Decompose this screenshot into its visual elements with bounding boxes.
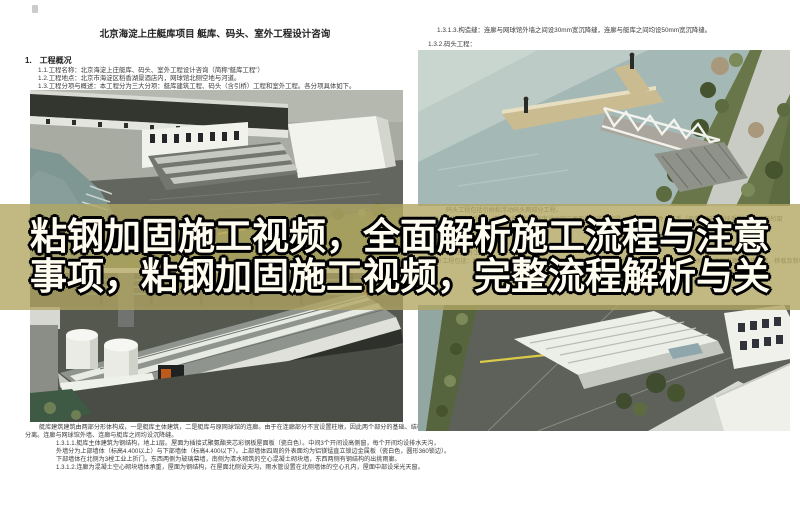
right-top-line-1: 1.3.1.3.构造缝：连廊与网球馆外墙之间设30mm宽沉降缝，连廊与艇库之间均…: [437, 27, 711, 35]
tall-building: [724, 305, 790, 369]
paragraph-line-4: 外墙分为上部墙体（标高4.400以上）与下部墙体（标高4.400以下）。上部墙体…: [56, 448, 450, 456]
paragraph-line-5: 下部墙体在北侧为3樘工业上折门。东西两侧为玻璃幕墙，南侧为清水砌筑的空心混凝土砌…: [56, 456, 401, 464]
paragraph-line-2: 分离。连廊与网球馆外墙、连廊与艇库之间均设沉降缝。: [25, 432, 177, 440]
paragraph-line-3: 1.3.1.1.艇库主体建筑为钢结构，地上1层。屋面为插接式聚氨酯夹芯彩钢板屋面…: [56, 440, 440, 448]
paragraph-line-6: 1.3.1.2.连廊为混凝土空心砌块墙体承重，屋面为钢结构，在屋面北侧设天沟，雨…: [56, 464, 424, 472]
paragraph-line-1: 艇库建筑建筑由两部分形体构成，一是艇库主体建筑，二是艇库与原网球馆的连廊。由于在…: [39, 424, 423, 432]
intro-line-1: 1.1.工程名称：北京海淀上庄艇库、码头、室外工程设计咨询（简称“艇库工程”）: [38, 67, 264, 75]
banner-text-line-2: 事项，粘钢加固施工视频，完整流程解析与关: [0, 257, 800, 297]
section-heading: 1. 工程概况: [25, 55, 72, 66]
corner-smudge: [32, 5, 38, 13]
document-page: { "banner": { "line1": "粘钢加固施工视频，全面解析施工流…: [0, 0, 800, 514]
intro-line-2: 1.2.工程地点：北京市海淀区稻香湖景酒店内，网球馆北侧空地与河道。: [38, 75, 240, 83]
banner-text-line-1: 粘钢加固施工视频，全面解析施工流程与注意: [0, 217, 800, 257]
page-title: 北京海淀上庄艇库项目 艇库、码头、室外工程设计咨询: [0, 26, 430, 40]
right-top-line-2: 1.3.2.码头工程：: [428, 41, 476, 49]
render-dock-bridge: [418, 50, 790, 206]
render-site-overview: [418, 305, 790, 431]
